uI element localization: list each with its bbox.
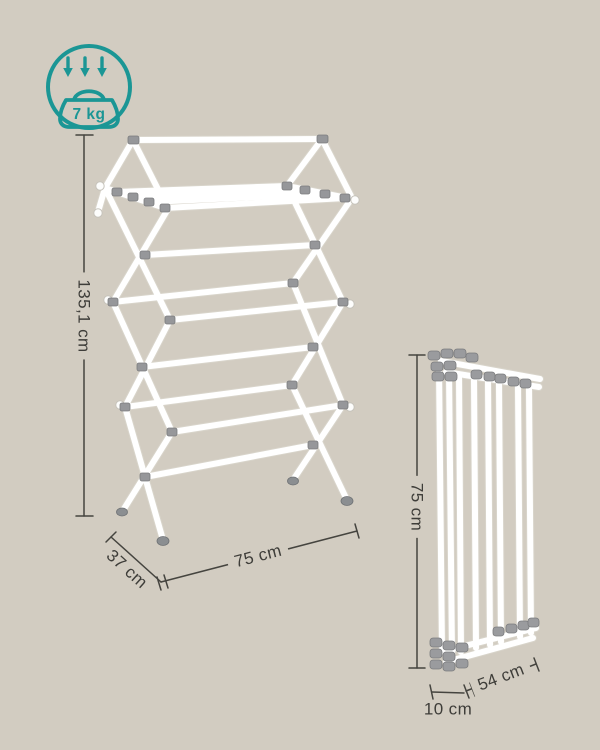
product-dimension-diagram: 7 kg xyxy=(0,0,600,750)
folded-depth-label: 10 cm xyxy=(424,701,472,718)
folded-depth-line xyxy=(432,692,464,693)
expanded-height-label: 135,1 cm xyxy=(74,272,95,359)
rack-illustration xyxy=(0,0,600,750)
folded-height-label: 75 cm xyxy=(407,476,428,538)
expanded-rack-drawing xyxy=(94,135,359,546)
folded-rack-drawing xyxy=(428,349,540,671)
